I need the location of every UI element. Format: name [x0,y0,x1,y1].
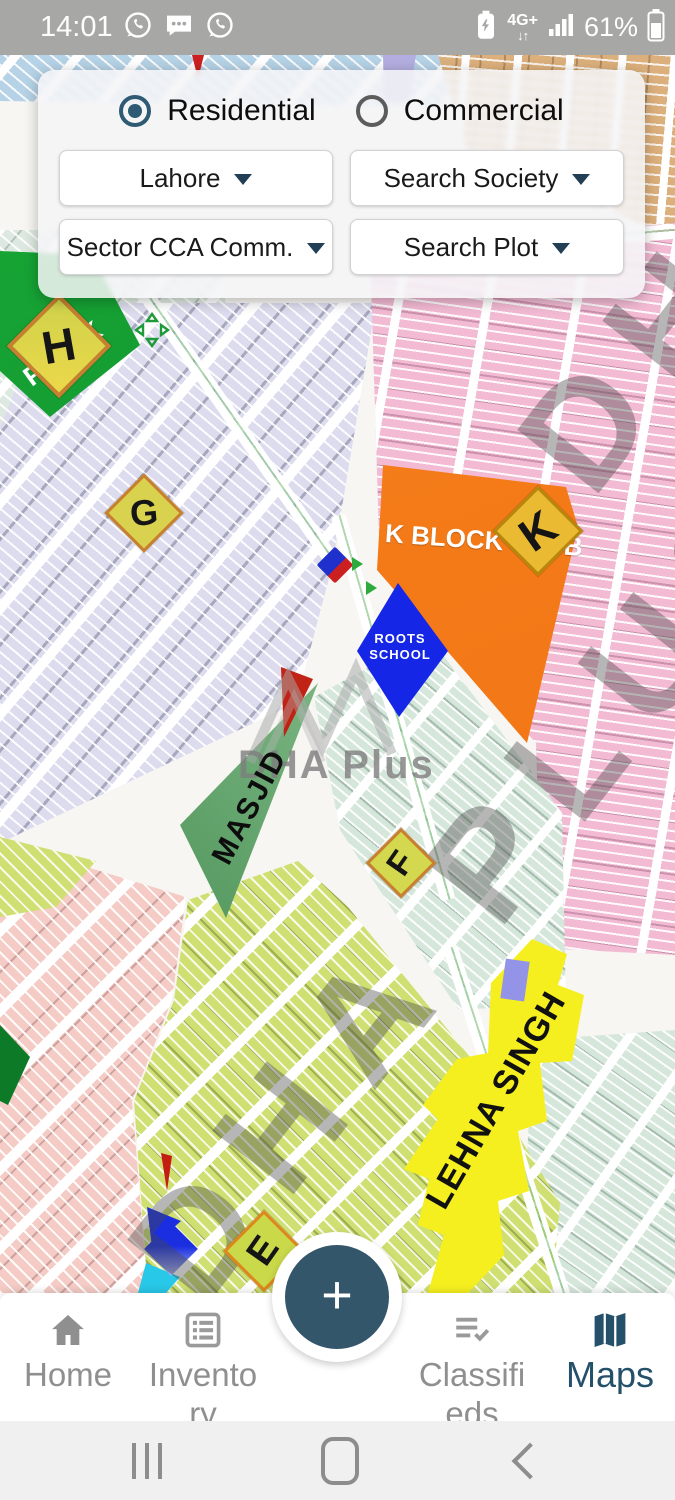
battery-icon [647,8,665,47]
map-filter-panel: Residential Commercial Lahore Search Soc… [38,70,645,298]
radio-commercial[interactable]: Commercial [356,94,564,128]
society-dropdown[interactable]: Search Society [350,150,624,206]
add-plot-fab[interactable]: + [285,1245,389,1349]
sector-dropdown[interactable]: Sector CCA Comm. [59,219,333,275]
map-crosshair-icon [134,312,170,353]
whatsapp-notification-icon [122,9,154,46]
power-saving-icon [474,9,498,46]
nav-item-maps[interactable]: Maps [556,1293,664,1421]
maps-icon [589,1307,631,1353]
chevron-down-icon [572,174,590,185]
city-dropdown[interactable]: Lahore [59,150,333,206]
plus-icon: + [321,1268,353,1322]
classifieds-list-check-icon [449,1307,495,1353]
nav-item-classifieds[interactable]: Classifieds [396,1293,548,1421]
map-direction-arrow-icon-2 [366,581,377,595]
signal-strength-icon [547,12,575,43]
home-icon [47,1307,89,1353]
radio-unselected-icon [356,95,388,127]
battery-percent: 61% [584,12,638,43]
nav-item-home[interactable]: Home [14,1293,122,1421]
status-bar: 14:01 4G+ ↓↑ 61% [0,0,675,55]
map-direction-arrow-icon [352,557,363,571]
chevron-down-icon [234,174,252,185]
chevron-down-icon [307,243,325,254]
radio-residential[interactable]: Residential [119,94,315,128]
android-navigation-bar [0,1421,675,1500]
phone-screen: 14:01 4G+ ↓↑ 61% [0,0,675,1500]
recent-apps-button[interactable] [132,1443,162,1479]
message-notification-icon [163,9,195,46]
status-time: 14:01 [40,11,113,44]
plot-type-radio-group: Residential Commercial [38,70,645,128]
whatsapp-notification-icon-2 [204,9,236,46]
inventory-list-icon [181,1307,225,1353]
radio-selected-icon [119,95,151,127]
chevron-down-icon [552,243,570,254]
plot-dropdown[interactable]: Search Plot [350,219,624,275]
network-type-indicator: 4G+ ↓↑ [507,13,538,42]
nav-item-inventory[interactable]: Inventory [128,1293,278,1421]
back-button[interactable] [512,1442,549,1479]
android-home-button[interactable] [321,1437,359,1485]
